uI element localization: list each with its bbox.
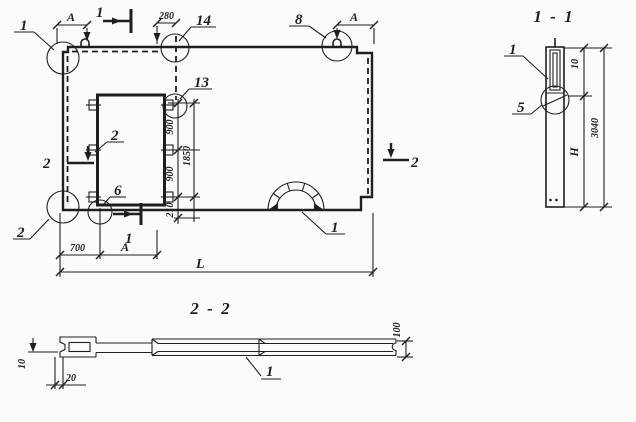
dim-900-lower: 900 — [165, 167, 176, 182]
callout-label-corner-bottom-left: 2 — [16, 225, 25, 241]
section-1-1: 1 - 1 1 5 10 Н 3040 — [504, 7, 612, 211]
panel-edge-section — [546, 47, 564, 207]
slab-profile — [60, 337, 396, 357]
dim-1850: 1850 — [182, 146, 193, 166]
dim-lip-height: 10 — [17, 359, 28, 369]
drawing-sheet: 1 8 14 13 2 6 2 1 1 1 2 — [0, 0, 636, 422]
panel-outline — [63, 47, 372, 210]
callout-label-joint: 5 — [517, 100, 525, 116]
plan-view: 1 8 14 13 2 6 2 1 1 1 2 — [13, 5, 419, 277]
callout-label-embed-lower: 13 — [194, 75, 210, 91]
dim-700: 700 — [70, 243, 85, 254]
section-mark-2-right: 2 — [383, 143, 419, 171]
section-2-2-dimensions — [28, 337, 413, 389]
section-mark-label: 2 — [42, 156, 51, 172]
section-2-2-title: 2 - 2 — [189, 299, 231, 318]
rebar-dot — [549, 199, 552, 202]
dim-210: 210 — [165, 203, 176, 219]
dim-3040: 3040 — [590, 118, 601, 139]
dim-length: L — [195, 257, 205, 272]
dim-thickness: 100 — [392, 323, 403, 338]
panel-drawing: 1 8 14 13 2 6 2 1 1 1 2 — [0, 0, 636, 422]
plan-dimensions-bottom — [56, 208, 377, 277]
section-mark-label: 1 — [96, 5, 104, 21]
callout-label-slab: 1 — [266, 364, 274, 380]
dim-10-top: 10 — [570, 59, 581, 69]
callout-label-anchor-bottom: 6 — [114, 183, 122, 199]
dim-a-bottom: А — [120, 240, 129, 254]
section-1-1-title: 1 - 1 — [533, 7, 574, 26]
plan-dimensions-top — [53, 19, 378, 44]
callout-label-edge: 1 — [509, 42, 517, 58]
callout-label-arch: 1 — [331, 220, 339, 236]
dim-900-upper: 900 — [165, 120, 176, 135]
section-1-1-leaders — [504, 56, 548, 114]
loop-core — [553, 53, 557, 87]
section-2-2: 2 - 2 — [17, 299, 413, 389]
rebar-dot — [555, 199, 558, 202]
callout-label-corner-top-left: 1 — [20, 18, 28, 34]
callout-label-embed-top: 14 — [196, 13, 212, 29]
anchor-plates — [86, 100, 176, 202]
callout-label-anchor-middle: 2 — [110, 128, 119, 144]
section-mark-1-top: 1 — [96, 5, 131, 33]
dim-lip-width: 20 — [65, 373, 76, 384]
arch-detail — [268, 182, 324, 210]
dim-280: 280 — [158, 11, 174, 22]
section-mark-label: 2 — [410, 155, 419, 171]
dim-a-top-left: А — [66, 10, 75, 24]
door-opening — [98, 95, 165, 205]
callout-label-loop: 8 — [295, 12, 303, 28]
loop-tube — [550, 50, 560, 90]
dim-height-H: Н — [567, 147, 581, 158]
dim-a-top-right: А — [349, 10, 358, 24]
